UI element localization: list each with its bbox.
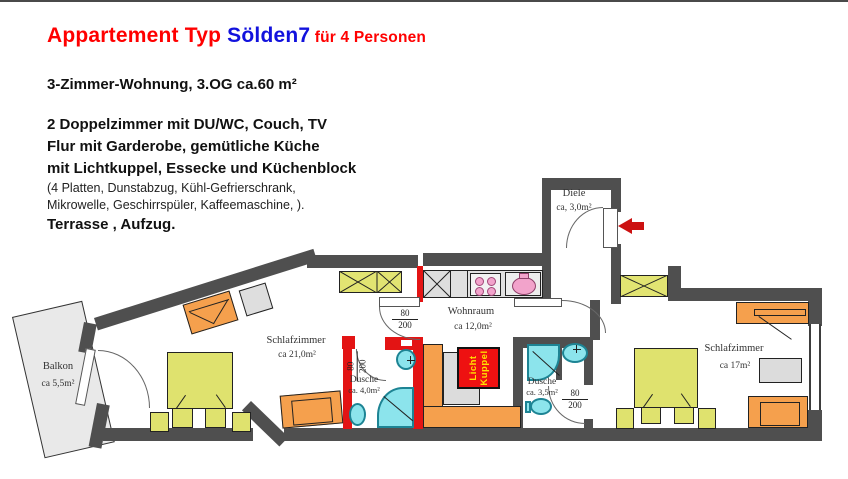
wall-bedroom2-right-lower [808, 410, 822, 441]
wall-bath2-right-upper [584, 337, 593, 385]
kitchen-divider [467, 271, 468, 297]
wall-hall-left [542, 178, 551, 303]
description-line: Terrasse , Aufzug. [47, 213, 356, 236]
wall-bath2-right-lower [584, 419, 593, 431]
room-area: ca. 4,0m² [338, 386, 390, 396]
page-title: Appartement Typ Sölden7 für 4 Personen [47, 24, 426, 48]
bed1 [167, 352, 233, 409]
door-width: 80 [392, 308, 418, 319]
bed1-nightstand-right [232, 412, 251, 432]
skylight-line2: Kuppel [479, 347, 490, 389]
room-label-schlafzimmer1: Schlafzimmer [246, 335, 346, 347]
faucet-cross [407, 360, 415, 361]
stove-burner [487, 277, 496, 286]
room-label-schlafzimmer2: Schlafzimmer [684, 343, 784, 355]
dining-bench-horizontal [423, 406, 521, 428]
skylight: Licht Kuppel [457, 347, 500, 389]
bedroom1-cabinet [239, 282, 274, 316]
entrance-arrow-shaft [631, 222, 644, 230]
description-line: 2 Doppelzimmer mit DU/WC, Couch, TV [47, 114, 356, 136]
wall-entry-right-upper [611, 178, 621, 212]
dining-bench-vertical [423, 344, 443, 408]
bedroom1-wardrobe-hatch [339, 271, 402, 293]
room-label-diele: Diele [554, 188, 594, 200]
wall-bedroom2-right-upper [808, 288, 822, 326]
wardrobe-line [758, 316, 791, 340]
shower-line [532, 351, 559, 376]
kitchen-fridge-hatch [423, 270, 451, 298]
description-line: (4 Platten, Dunstabzug, Kühl-Gefrierschr… [47, 180, 356, 197]
blanket-fold [216, 394, 226, 408]
room-area-diele: ca, 3,0m² [546, 203, 602, 214]
hall-closet-hatch [620, 275, 668, 297]
room-label-balkon: Balkon [28, 361, 88, 373]
title-suffix: für 4 Personen [310, 29, 426, 46]
stove-burner [475, 287, 484, 296]
entrance-door-leaf [603, 208, 618, 248]
bath1-sink [396, 349, 416, 370]
room-area-schlafzimmer2: ca 17m² [690, 361, 780, 372]
faucet-cross [410, 356, 411, 364]
description-line: mit Lichtkuppel, Essecke und Küchenblock [47, 158, 356, 180]
wardrobe-rail [754, 309, 806, 316]
skylight-label: Licht Kuppel [468, 347, 490, 389]
wall-top-kitchen [423, 253, 543, 266]
bed2-nightstand-left [616, 408, 634, 429]
wall-bottom-extension [103, 428, 153, 441]
sofa-seat [760, 402, 800, 426]
bath1-toilet [349, 403, 366, 426]
skylight-line1: Licht [468, 347, 479, 389]
shower-line [383, 396, 413, 421]
room-area-balkon: ca 5,5m² [28, 379, 88, 390]
faucet-cross [576, 345, 577, 353]
bed1-nightstand-left [150, 412, 169, 432]
wall-bedroom2-top [668, 288, 822, 301]
bath2-sink [562, 343, 588, 363]
sofa-seat [291, 397, 333, 425]
bedroom1-door-leaf [379, 297, 420, 307]
blanket-fold [176, 395, 186, 409]
bed2 [634, 348, 698, 408]
wall-top-middle [307, 255, 418, 268]
wardrobe-line [190, 312, 215, 324]
balcony-door-swing [98, 350, 150, 408]
stove-burner [475, 277, 484, 286]
faucet-cross [573, 349, 581, 350]
blanket-fold [643, 394, 653, 408]
apartment-subtitle: 3-Zimmer-Wohnung, 3.OG ca.60 m² [47, 76, 297, 93]
room-label-wohnraum: Wohnraum [431, 306, 511, 318]
room-area-schlafzimmer1: ca 21,0m² [252, 350, 342, 361]
title-highlight: Sölden7 [227, 24, 310, 47]
hall-door-leaf [514, 298, 562, 307]
page-top-border [0, 0, 848, 2]
room-label-dusche2: Dusche ca. 3,5m² [514, 377, 570, 398]
apartment-description: 2 Doppelzimmer mit DU/WC, Couch, TV Flur… [47, 114, 356, 236]
bed2-nightstand-right [698, 408, 716, 429]
window-bedroom2 [809, 324, 821, 412]
entrance-arrow-icon [618, 218, 632, 234]
bedroom2-sofa [748, 396, 808, 428]
door-size-label: 80 200 [392, 308, 418, 331]
red-wall-bath1-right [413, 337, 423, 429]
room-area: ca. 3,5m² [514, 388, 570, 398]
door-height: 200 [392, 319, 418, 331]
bedroom1-sofa [280, 390, 344, 428]
kitchen-sink-unit [505, 272, 541, 296]
wall-bottom-main [284, 428, 822, 441]
description-line: Flur mit Garderobe, gemütliche Küche [47, 136, 356, 158]
description-line: Mikrowelle, Geschirrspüler, Kaffeemaschi… [47, 197, 356, 214]
door-height: 200 [562, 399, 588, 411]
blanket-fold [681, 393, 691, 407]
kitchen-faucet [519, 273, 529, 279]
bath2-toilet [530, 398, 552, 415]
wall-niche [401, 340, 412, 346]
kitchen-stove [470, 273, 501, 296]
title-main: Appartement Typ [47, 24, 227, 47]
room-label-dusche1: Dusche ca. 4,0m² [338, 375, 390, 396]
bedroom2-wardrobe [736, 302, 809, 324]
kitchen-sink [512, 277, 536, 295]
room-area-wohnraum: ca 12,0m² [433, 322, 513, 333]
stove-burner [487, 287, 496, 296]
